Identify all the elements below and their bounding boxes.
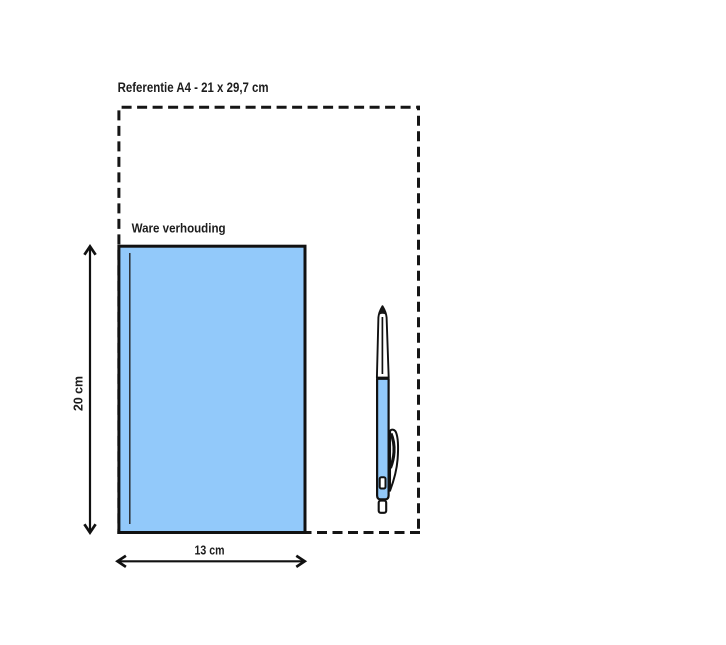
- svg-text:20 cm: 20 cm: [70, 376, 85, 411]
- svg-text:13 cm: 13 cm: [195, 543, 225, 558]
- svg-text:Referentie A4 - 21 x 29,7 cm: Referentie A4 - 21 x 29,7 cm: [118, 80, 269, 95]
- svg-text:Ware verhouding: Ware verhouding: [132, 220, 226, 235]
